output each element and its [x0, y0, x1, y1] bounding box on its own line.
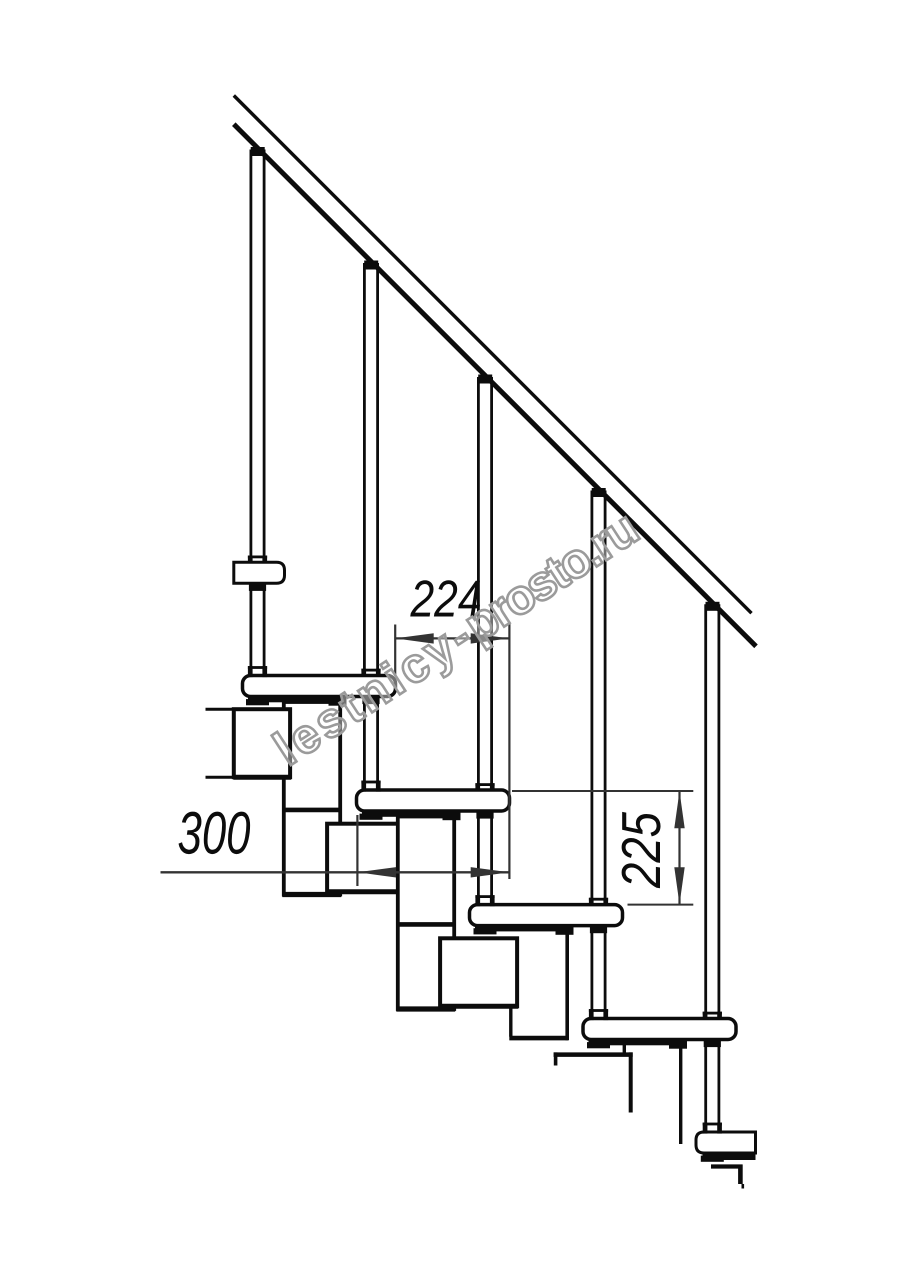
svg-text:300: 300	[178, 800, 251, 867]
svg-text:225: 225	[610, 812, 672, 889]
